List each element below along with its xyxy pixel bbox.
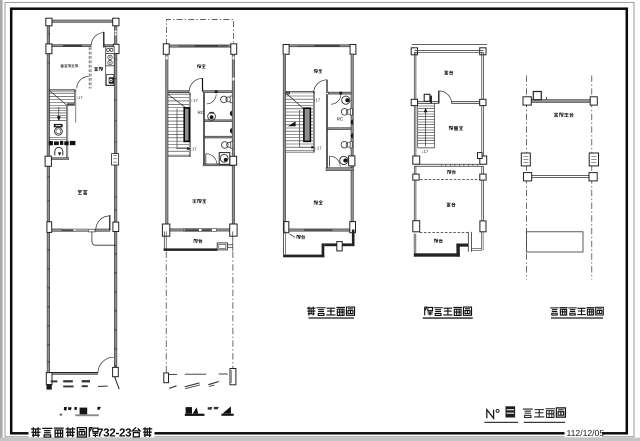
svg-text:RC: RC [198,110,205,115]
svg-text:↑17: ↑17 [191,98,198,103]
svg-text:↓17: ↓17 [315,146,322,151]
svg-text:↓17: ↓17 [421,149,428,154]
svg-text:732-23: 732-23 [97,427,132,440]
svg-text:↓17: ↓17 [190,147,197,152]
svg-text:↑17: ↑17 [76,95,82,100]
svg-text:RC: RC [337,117,344,122]
svg-text:↑17: ↑17 [313,98,320,103]
svg-text:112/12/05: 112/12/05 [567,428,605,438]
